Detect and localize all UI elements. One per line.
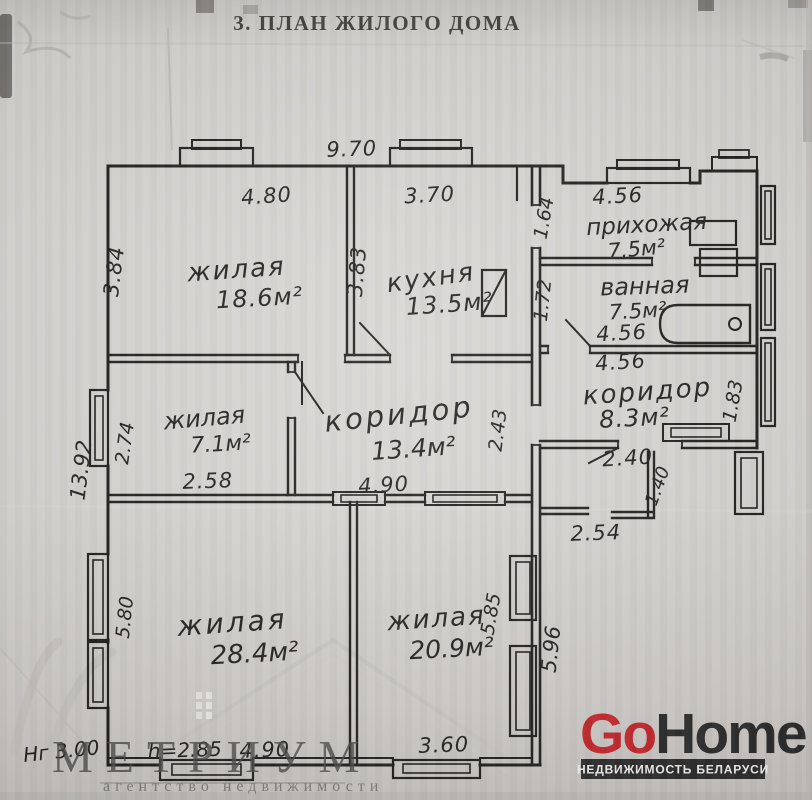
- dim-living4-depth-inner: 5.85: [477, 591, 506, 636]
- dim-corridor-main-width: 4.90: [358, 472, 410, 499]
- dim-living4-depth-outer: 5.96: [537, 625, 566, 674]
- gohome-go-text: Go: [580, 702, 655, 766]
- dim-entry-depth: 1.40: [641, 464, 674, 509]
- bathroom-sink: [700, 249, 737, 276]
- floor-plan-drawing: 3. ПЛАН ЖИЛОГО ДОМА: [0, 0, 812, 800]
- room-area-living1: 18.6м²: [215, 282, 304, 315]
- dim-kitchen-depth: 3.83: [343, 245, 371, 298]
- room-label-bathroom: ванная: [600, 270, 690, 301]
- scanned-floor-plan-page: 3. ПЛАН ЖИЛОГО ДОМА: [0, 0, 812, 800]
- agency-tagline-watermark: агентство недвижимости: [103, 778, 383, 795]
- room-area-living4: 20.9м²: [409, 632, 495, 665]
- dim-house-width-top: 9.70: [326, 136, 378, 162]
- room-label-living4: жилая: [385, 601, 486, 638]
- dim-porch-width: 2.54: [570, 520, 622, 546]
- dim-bathroom-width: 4.56: [596, 320, 648, 347]
- gohome-tagline-text: НЕДВИЖИМОСТЬ БЕЛАРУСИ: [577, 763, 769, 777]
- dim-hallway-depth: 1.64: [530, 195, 559, 240]
- dim-hallway-width: 4.56: [592, 183, 644, 210]
- page-title: 3. ПЛАН ЖИЛОГО ДОМА: [233, 11, 521, 35]
- dim-living3-depth: 5.80: [112, 595, 138, 639]
- room-area-kitchen: 13.5м²: [405, 287, 494, 321]
- dim-corridor-small-depth: 1.83: [719, 378, 748, 423]
- room-area-living3: 28.4м²: [210, 637, 299, 672]
- dim-entry-width: 2.40: [602, 445, 654, 472]
- room-area-hallway: 7.5м²: [607, 235, 667, 264]
- dim-house-depth-left: 13.92: [65, 439, 96, 502]
- room-labels: жилая 18.6м² кухня 13.5м² прихожая 7.5м²…: [161, 209, 713, 671]
- room-label-living3: жилая: [175, 602, 288, 643]
- bathtub-drain: [729, 318, 741, 330]
- dim-bathroom-depth: 1.72: [530, 278, 556, 322]
- dim-corridor-main-depth: 2.43: [485, 408, 512, 453]
- dim-kitchen-width: 3.70: [404, 182, 456, 209]
- agency-name-watermark: МЕТРИУМ: [52, 731, 372, 782]
- gohome-home-text: Home: [655, 702, 806, 766]
- agency-watermark: МЕТРИУМ агентство недвижимости: [52, 731, 383, 795]
- dim-living1-width: 4.80: [240, 182, 292, 209]
- dim-living2-depth: 2.74: [111, 421, 139, 466]
- room-area-living2: 7.1м²: [190, 430, 252, 458]
- gohome-logo: GoHome НЕДВИЖИМОСТЬ БЕЛАРУСИ: [577, 702, 806, 779]
- dim-living2-width: 2.58: [182, 468, 234, 494]
- house-window-watermark-icon: [196, 692, 212, 719]
- entry-steps: [735, 452, 763, 514]
- room-area-corridor-small: 8.3м²: [598, 402, 670, 434]
- dim-living1-depth: 3.84: [99, 244, 129, 297]
- bathtub: [660, 305, 750, 343]
- gohome-wordmark: GoHome: [580, 702, 806, 766]
- dim-corridor-small-width: 4.56: [594, 348, 646, 375]
- room-area-corridor-main: 13.4м²: [370, 431, 456, 466]
- dim-living4-width: 3.60: [418, 732, 470, 758]
